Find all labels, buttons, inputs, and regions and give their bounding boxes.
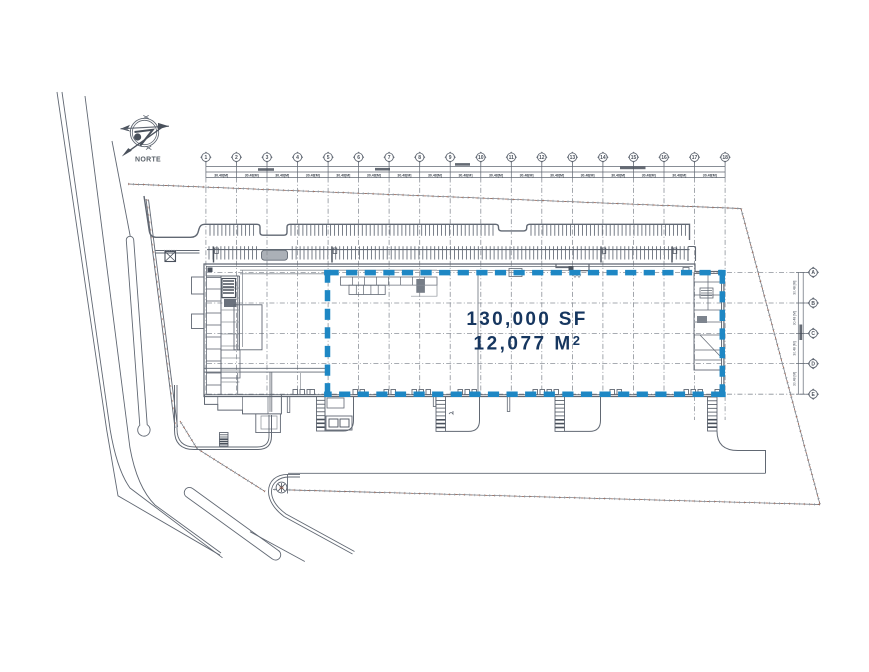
svg-text:130,000 SF: 130,000 SF — [466, 309, 587, 330]
svg-text:16: 16 — [661, 155, 667, 161]
svg-text:30.48[M]: 30.48[M] — [642, 173, 656, 177]
svg-text:30.48[M]: 30.48[M] — [397, 173, 411, 177]
svg-text:30.48[M]: 30.48[M] — [581, 173, 595, 177]
svg-text:30.48[M]: 30.48[M] — [245, 173, 259, 177]
svg-text:15: 15 — [631, 155, 637, 161]
svg-text:30.48[M]: 30.48[M] — [489, 173, 503, 177]
svg-text:2: 2 — [235, 155, 238, 161]
svg-text:B: B — [811, 301, 815, 307]
svg-text:17: 17 — [692, 155, 698, 161]
svg-text:30.48 [M]: 30.48 [M] — [792, 372, 796, 386]
svg-text:30.48 [M]: 30.48 [M] — [792, 311, 796, 325]
svg-text:8: 8 — [418, 155, 421, 161]
svg-text:30.48[M]: 30.48[M] — [550, 173, 564, 177]
svg-text:3: 3 — [266, 155, 269, 161]
svg-text:30.48[M]: 30.48[M] — [703, 173, 717, 177]
svg-text:30.48[M]: 30.48[M] — [306, 173, 320, 177]
svg-text:12: 12 — [539, 155, 545, 161]
svg-text:NORTE: NORTE — [135, 156, 161, 163]
svg-text:10: 10 — [478, 155, 484, 161]
svg-text:A: A — [811, 270, 815, 276]
svg-text:1: 1 — [205, 155, 208, 161]
svg-text:30.48[M]: 30.48[M] — [336, 173, 350, 177]
svg-text:11: 11 — [509, 155, 515, 161]
svg-text:14: 14 — [600, 155, 606, 161]
svg-text:30.48[M]: 30.48[M] — [428, 173, 442, 177]
svg-text:6: 6 — [357, 155, 360, 161]
svg-text:30.48[M]: 30.48[M] — [458, 173, 472, 177]
svg-text:9: 9 — [449, 155, 452, 161]
svg-text:30.48[M]: 30.48[M] — [367, 173, 381, 177]
svg-text:30.48[M]: 30.48[M] — [520, 173, 534, 177]
svg-text:5: 5 — [327, 155, 330, 161]
svg-text:12,077 M2: 12,077 M2 — [474, 333, 583, 355]
svg-text:18: 18 — [722, 155, 728, 161]
svg-text:D: D — [811, 361, 815, 367]
svg-text:30.48[M]: 30.48[M] — [611, 173, 625, 177]
svg-text:30.48[M]: 30.48[M] — [214, 173, 228, 177]
svg-text:4: 4 — [296, 155, 299, 161]
svg-text:30.48 [M]: 30.48 [M] — [792, 281, 796, 295]
svg-text:13: 13 — [570, 155, 576, 161]
svg-text:7: 7 — [388, 155, 391, 161]
svg-text:30.48[M]: 30.48[M] — [275, 173, 289, 177]
svg-text:C: C — [811, 331, 815, 337]
svg-text:30.48[M]: 30.48[M] — [672, 173, 686, 177]
svg-text:30.48 [M]: 30.48 [M] — [792, 341, 796, 355]
